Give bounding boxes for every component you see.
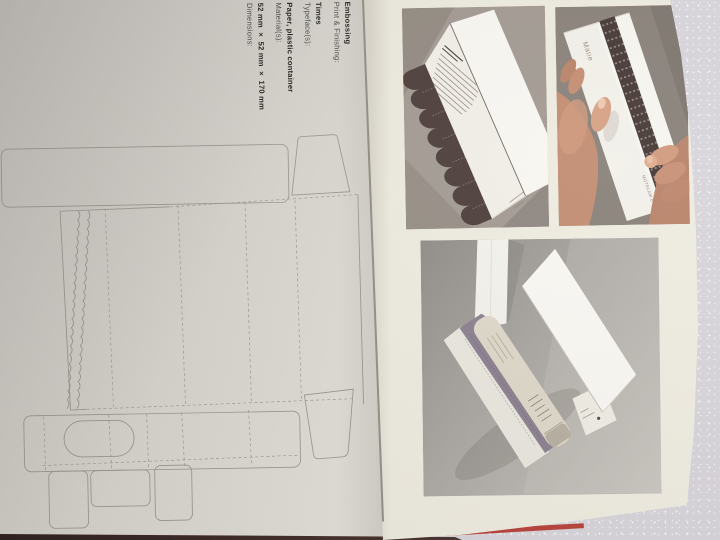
dieline-stadium-cutout xyxy=(64,420,135,457)
dieline-bottom-flap-fold-c xyxy=(147,414,149,469)
spec-label-typefaces: Typeface(s): xyxy=(302,2,313,46)
dieline-bottom-flap-fold-d xyxy=(182,413,185,468)
book-spread-photo: Dimensions: 52 mm × 52 mm × 170 mm Mater… xyxy=(0,0,720,540)
dieline-body-bottom-edge xyxy=(71,409,87,410)
spec-value-dimensions: 52 mm × 52 mm × 170 mm xyxy=(255,3,266,110)
dieline-body-top-fold xyxy=(170,195,358,207)
spec-label-dimensions: Dimensions: xyxy=(244,3,255,47)
dieline-bottom-flap-fold-a xyxy=(44,417,46,472)
dieline-fold-line-2 xyxy=(178,205,186,406)
spec-label-materials: Material(s): xyxy=(273,2,284,43)
photo-box-on-surface xyxy=(402,6,549,230)
dieline-fold-line-4 xyxy=(295,200,302,401)
photo-open-box-with-tube xyxy=(420,238,661,497)
dieline-top-flap xyxy=(1,144,289,207)
dieline-lace-cut-right xyxy=(77,211,90,409)
dieline-tab-2 xyxy=(91,470,151,507)
dieline-tab-1 xyxy=(49,471,89,529)
spec-value-typefaces: Times xyxy=(313,2,323,25)
dieline-bottom-flap-fold-e xyxy=(249,410,252,465)
dieline-body-bottom-fold xyxy=(86,399,353,410)
dieline-diagram xyxy=(0,118,390,540)
dieline-bottom-flap-fold-b xyxy=(109,415,112,470)
dieline-fold-line-3 xyxy=(245,202,251,403)
dieline-bottom-flap xyxy=(24,411,301,472)
photo-hands-holding-box: Matie MOTELAM E xyxy=(555,5,690,226)
dieline-body-top-edge xyxy=(60,207,170,211)
dieline-tab-3 xyxy=(155,465,193,521)
dieline-fold-line-1 xyxy=(105,208,113,408)
spec-value-materials: Paper, plastic container xyxy=(284,2,295,92)
